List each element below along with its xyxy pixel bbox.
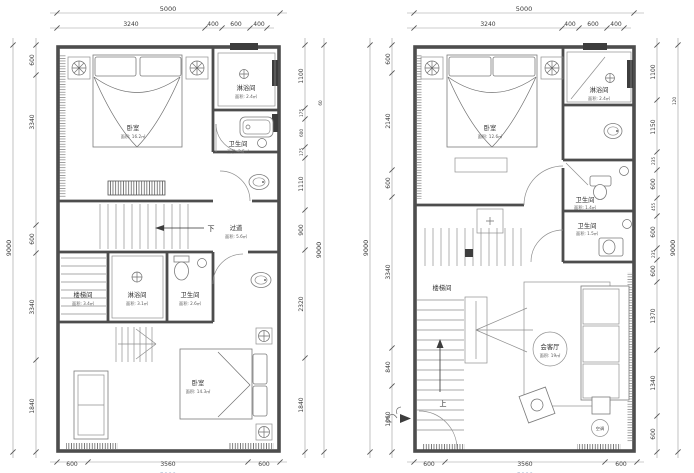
room-label-bedroom: 卧室 (484, 123, 497, 132)
dim-label: 120 (672, 97, 677, 105)
pillow (140, 57, 181, 76)
room-area: 面积: 2.6㎡ (179, 300, 202, 307)
sofa-symbol (581, 286, 629, 400)
pillow (493, 57, 535, 76)
dim-label: 600 (423, 461, 435, 468)
dim-label: 600 (258, 461, 270, 468)
pillow (95, 57, 136, 76)
desk-symbol (455, 158, 507, 172)
dim-label: 3560 (517, 461, 532, 468)
dim-label: 600 (650, 178, 657, 190)
dim-label: 3340 (29, 114, 36, 129)
room-label-shower: 淋浴间 (237, 83, 256, 92)
dim-label: 1840 (29, 398, 36, 413)
stairs-symbol (116, 327, 156, 362)
door-arc (531, 230, 563, 262)
dim-label: 1150 (650, 119, 657, 134)
shower-room-fixtures (567, 52, 631, 102)
furniture (387, 52, 632, 449)
basin-icon (258, 139, 267, 148)
radiator-symbol (108, 181, 165, 195)
chair-symbol (519, 387, 555, 423)
dim-label: 3240 (480, 21, 495, 28)
room-label-shower: 淋浴间 (590, 85, 609, 94)
room-label-bathroom: 卫生间 (229, 139, 248, 148)
pillow (449, 57, 491, 76)
dim-left-overall: 9000 (5, 240, 13, 257)
dim-label: 175 (299, 109, 304, 117)
dim-label: 2140 (385, 113, 392, 128)
dim-label: 600 (66, 461, 78, 468)
dim-label: 400 (253, 21, 265, 28)
room-label-corridor: 过道 (230, 223, 243, 232)
room-label-bathroom: 卫生间 (181, 290, 200, 299)
dim-label: 400 (207, 21, 219, 28)
cabinet-symbol (74, 371, 108, 439)
washbasin-icon (251, 273, 271, 288)
room-area: 面积: 2.5㎡ (227, 148, 250, 155)
dim-label: 1340 (650, 375, 657, 390)
stairs-up-label: 上 (440, 399, 447, 408)
dim-left-overall: 9000 (362, 240, 370, 257)
dim-label: 600 (385, 177, 392, 189)
dim-label: 600 (587, 21, 599, 28)
room-label-bedroom: 卧室 (192, 378, 205, 387)
door-arc (220, 171, 250, 201)
room-label-stairwell: 楼梯间 (74, 290, 93, 299)
ceiling-fan-icon (68, 57, 90, 79)
dim-label: 840 (385, 361, 392, 373)
dim-label: 600 (650, 265, 657, 277)
dim-label: 1840 (298, 397, 305, 412)
room-area: 面积: 2.4㎡ (588, 95, 611, 102)
dim-label: 2320 (298, 296, 305, 311)
ceiling-fan-icon (421, 57, 443, 79)
room-label-living: 会客厅 (541, 342, 560, 351)
room-area: 面积: 3.1㎡ (126, 300, 149, 307)
dim-label: 600 (299, 129, 304, 137)
washbasin-icon (604, 124, 622, 139)
toilet-icon (599, 220, 632, 257)
left-plan: 5000 3240 400 600 400 9000 600 3340 600 … (0, 0, 347, 473)
stairs-symbol (425, 209, 521, 266)
room-area: 面积: 2.4㎡ (235, 93, 258, 100)
lintel (230, 43, 258, 50)
door-arc (524, 166, 563, 205)
room-label-bathroom: 卫生间 (578, 221, 597, 230)
lintel (583, 43, 607, 50)
room-area: 面积: 1.4㎡ (574, 204, 597, 211)
dim-label: 1100 (298, 68, 305, 83)
stairs-down-label: 下 (208, 225, 215, 233)
dim-label: 600 (230, 21, 242, 28)
dim-label: 400 (564, 21, 576, 28)
window-hatch (66, 443, 118, 449)
window-hatch (423, 444, 465, 450)
pillow (253, 386, 267, 416)
ceiling-fan-icon (541, 57, 563, 79)
door-arc (213, 254, 243, 284)
dim-label: 3560 (160, 461, 175, 468)
basin-icon (620, 167, 629, 176)
shower-room-fixtures (112, 256, 163, 318)
window-hatch (577, 444, 621, 450)
dim-label: 3340 (385, 264, 392, 279)
dim-label: 600 (29, 54, 36, 66)
wardrobe-strip (60, 54, 66, 198)
floor-plan-viewer: 5000 3240 400 600 400 9000 600 3340 600 … (0, 0, 694, 473)
room-label-bathroom: 卫生间 (576, 195, 595, 204)
ceiling-fan-icon (256, 328, 272, 344)
dim-label: 900 (298, 224, 305, 236)
room-area: 面积: 5.6㎡ (225, 233, 248, 240)
dim-label: 600 (29, 233, 36, 245)
stair-rail (465, 297, 533, 363)
basin-icon (623, 220, 632, 229)
dim-right-overall: 9000 (315, 242, 323, 259)
dim-label: 60 (318, 100, 323, 106)
bathtub-icon (240, 117, 273, 137)
washbasin-icon (249, 175, 269, 190)
dim-label: 235 (651, 157, 656, 165)
ceiling-fan-icon (256, 424, 272, 440)
dim-label: 1060 (385, 411, 392, 426)
room-label-shower: 淋浴间 (128, 290, 147, 299)
dim-label: 400 (610, 21, 622, 28)
dim-label: 600 (650, 226, 657, 238)
toilet-icon (174, 256, 207, 280)
wall-niche (627, 60, 633, 88)
room-area: 面积: 12.6㎡ (478, 133, 503, 140)
room-area: 面积: 3.4㎡ (72, 300, 95, 307)
room-label-bedroom: 卧室 (127, 123, 140, 132)
room-area: 面积: 1.5㎡ (576, 230, 599, 237)
dim-label: 1370 (650, 308, 657, 323)
wardrobe-strip (416, 54, 422, 199)
stairs-symbol (100, 204, 188, 249)
room-area: 面积: 14.3㎡ (186, 388, 211, 395)
toilet-icon (566, 163, 629, 200)
dim-top-overall: 5000 (516, 5, 533, 13)
dim-label: 600 (385, 53, 392, 65)
stairs-symbol (417, 300, 464, 430)
direction-arrow (155, 225, 204, 231)
dim-label: 3240 (123, 21, 138, 28)
dim-label: 1100 (650, 64, 657, 79)
pillow (253, 354, 267, 384)
room-area: 面积: 16.2㎡ (121, 133, 146, 140)
dim-label: 455 (651, 203, 656, 211)
dim-label: 175 (299, 148, 304, 156)
dim-label: 1110 (298, 176, 305, 191)
ceiling-fan-icon (186, 57, 208, 79)
dim-label: 600 (650, 428, 657, 440)
door-leaf (566, 163, 588, 185)
dim-right-overall: 9000 (669, 240, 677, 257)
window-hatch (228, 443, 274, 449)
side-table (592, 397, 610, 414)
room-area: 面积: 19㎡ (540, 352, 561, 359)
ac-label: 空调 (596, 425, 604, 432)
right-plan: 5000 3240 400 600 400 9000 600 2140 600 … (347, 0, 694, 473)
dim-label: 600 (615, 461, 627, 468)
dim-label: 235 (651, 250, 656, 258)
dim-top-overall: 5000 (160, 5, 177, 13)
room-label-stairwell: 楼梯间 (433, 283, 452, 292)
basin-icon (198, 259, 207, 268)
dim-label: 3340 (29, 299, 36, 314)
